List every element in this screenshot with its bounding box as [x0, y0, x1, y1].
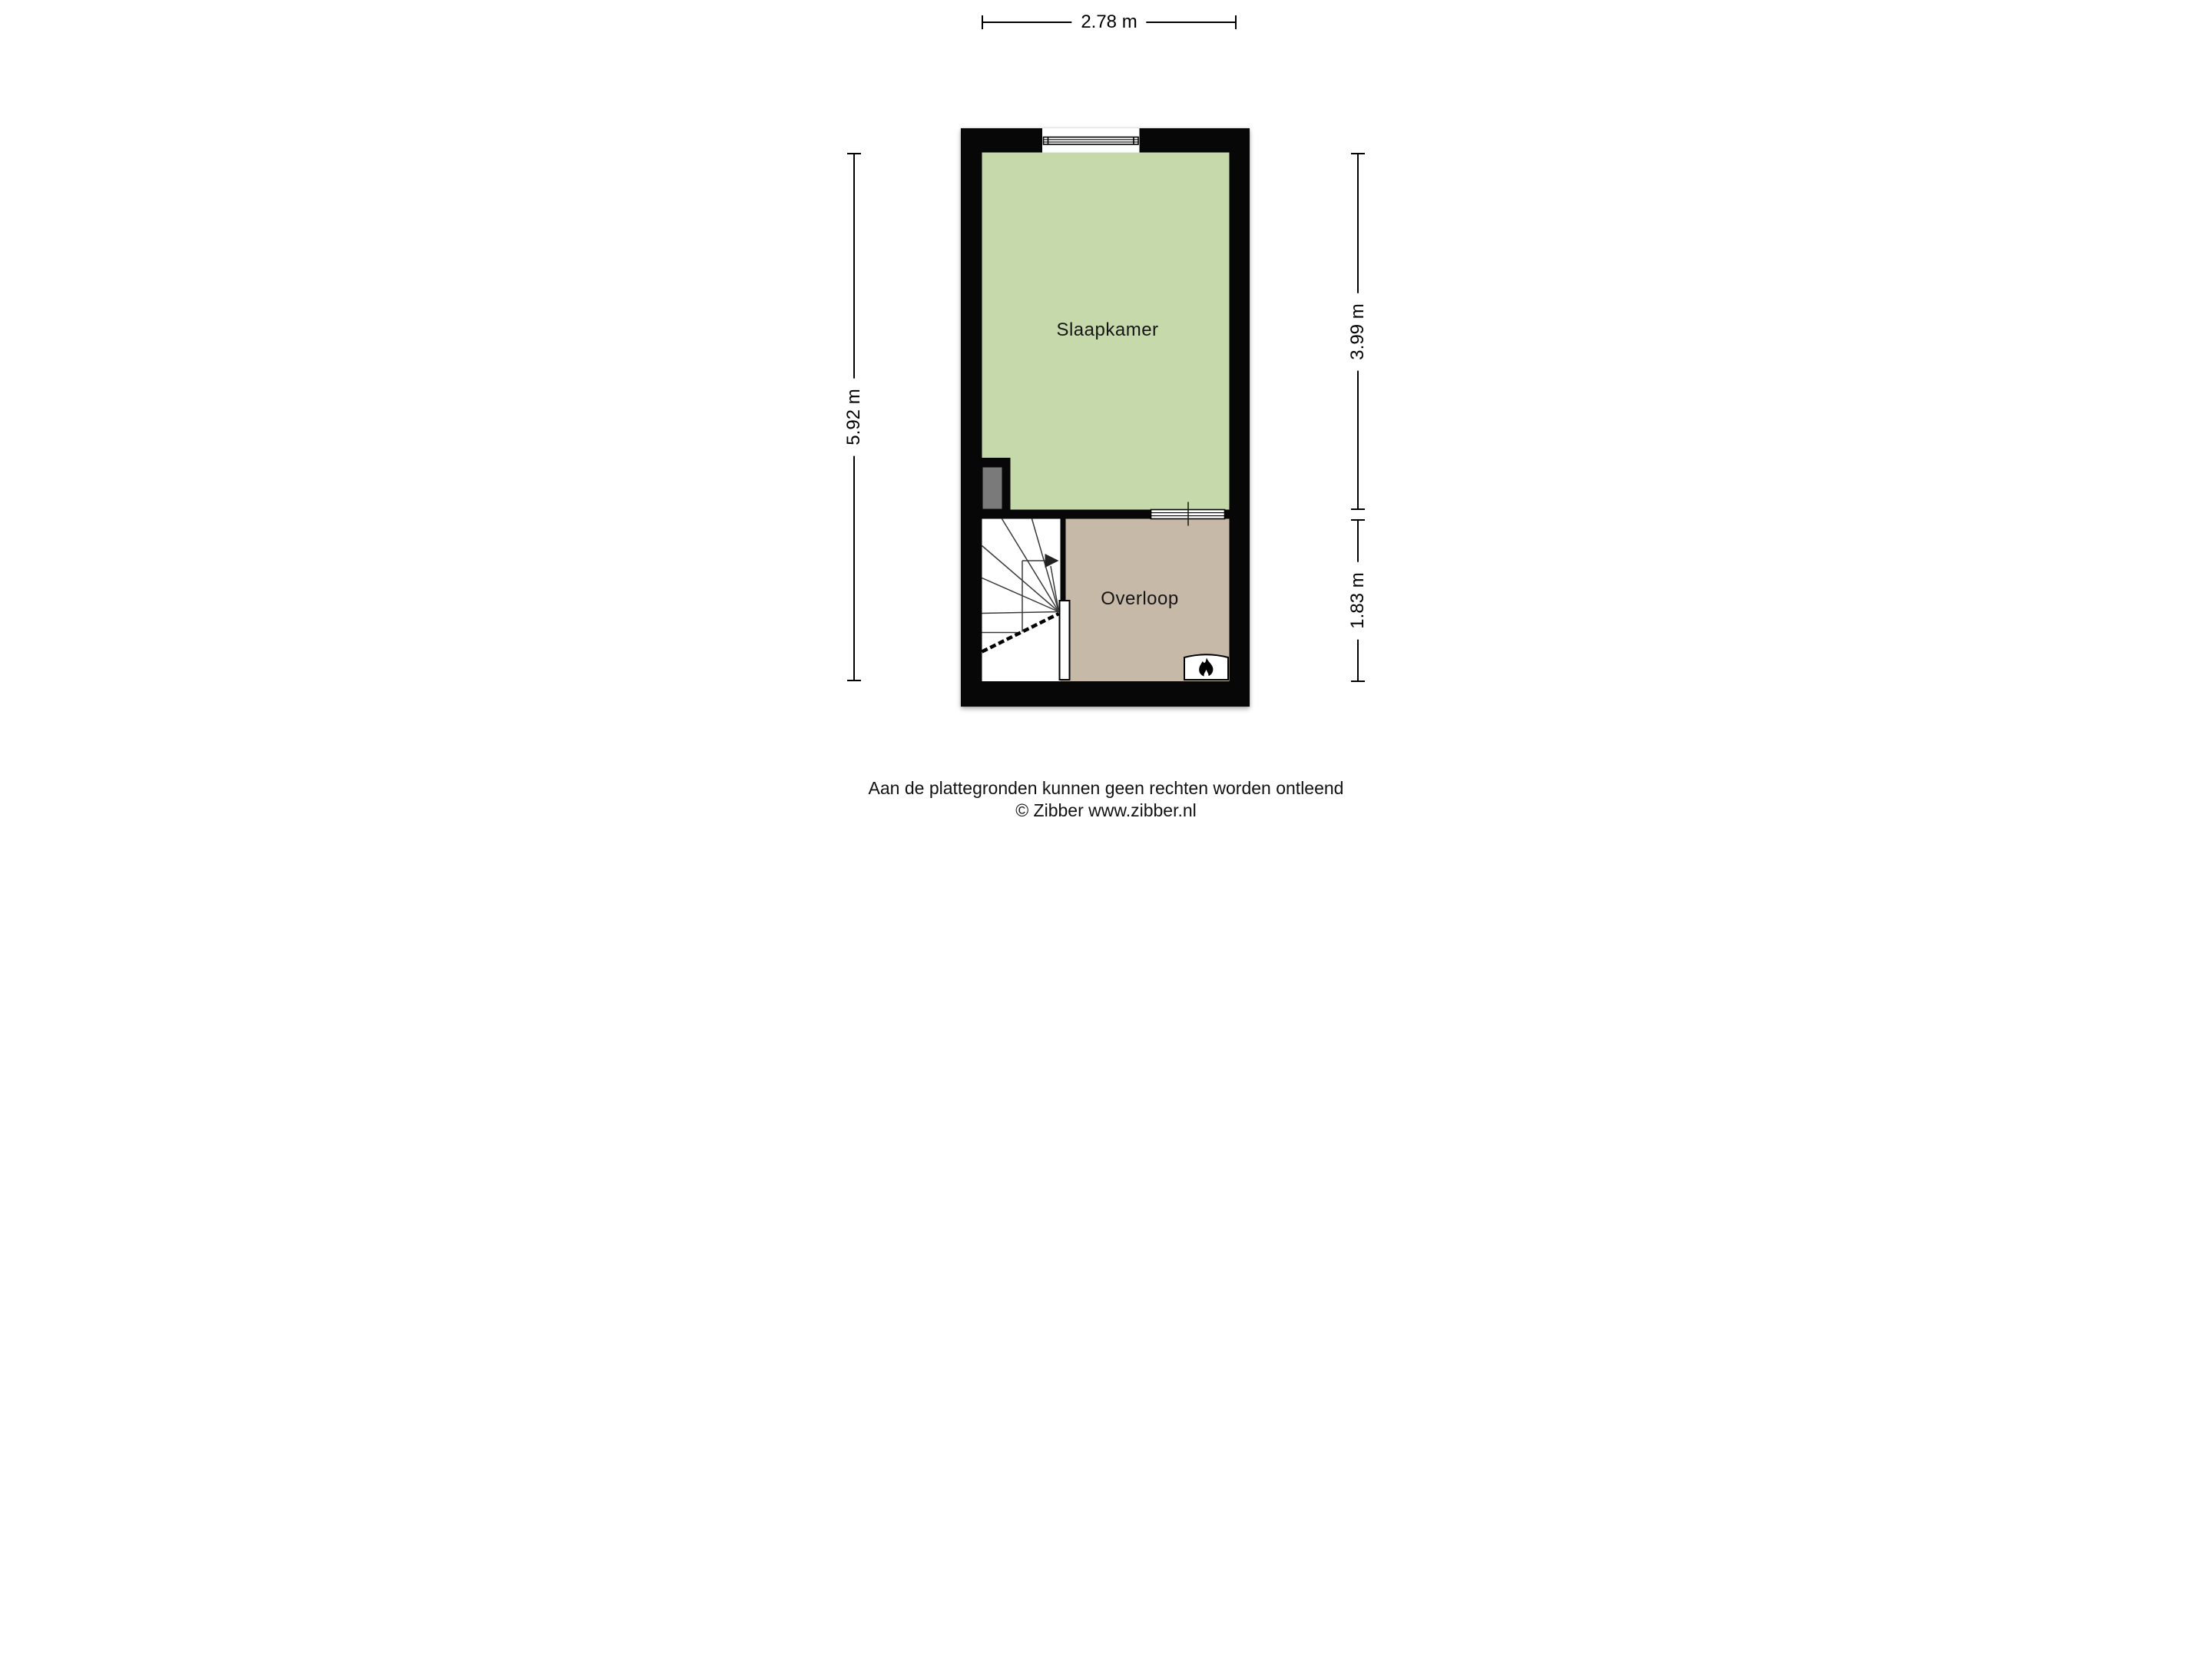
- stair-side-wall: [1061, 519, 1066, 601]
- dimension-tick: [1351, 153, 1365, 154]
- dimension-left: 5.92 m: [847, 153, 861, 681]
- dimension-tick: [982, 15, 983, 29]
- dimension-tick: [1351, 508, 1365, 510]
- window-icon: [1042, 128, 1140, 153]
- dimension-right-upper: 3.99 m: [1351, 153, 1365, 510]
- dimension-tick: [847, 153, 861, 154]
- duct-shaft: [982, 458, 1011, 510]
- dimension-right-upper-label: 3.99 m: [1346, 293, 1370, 370]
- bedroom-label: Slaapkamer: [1056, 320, 1158, 341]
- fireplace: [1184, 654, 1228, 680]
- dimension-right-lower: 1.83 m: [1351, 519, 1365, 682]
- stairwell-floor: [982, 519, 1061, 682]
- dimension-top-label: 2.78 m: [1071, 10, 1146, 35]
- dimension-tick: [1351, 519, 1365, 521]
- credit-text: © Zibber www.zibber.nl: [553, 800, 1659, 822]
- dimension-tick: [847, 680, 861, 681]
- dimension-tick: [1235, 15, 1237, 29]
- wall-opening: [1060, 601, 1070, 680]
- dimension-tick: [1351, 680, 1365, 682]
- dimension-left-label: 5.92 m: [842, 378, 866, 455]
- landing-label: Overloop: [1101, 588, 1178, 610]
- dimension-top: 2.78 m: [982, 15, 1237, 29]
- dimension-right-lower-label: 1.83 m: [1346, 561, 1370, 639]
- footer: Aan de plattegronden kunnen geen rechten…: [553, 777, 1659, 822]
- disclaimer-text: Aan de plattegronden kunnen geen rechten…: [553, 777, 1659, 800]
- floorplan-drawing: [961, 128, 1250, 707]
- floorplan-page: 2.78 m 5.92 m 3.99 m 1.83 m: [553, 0, 1659, 829]
